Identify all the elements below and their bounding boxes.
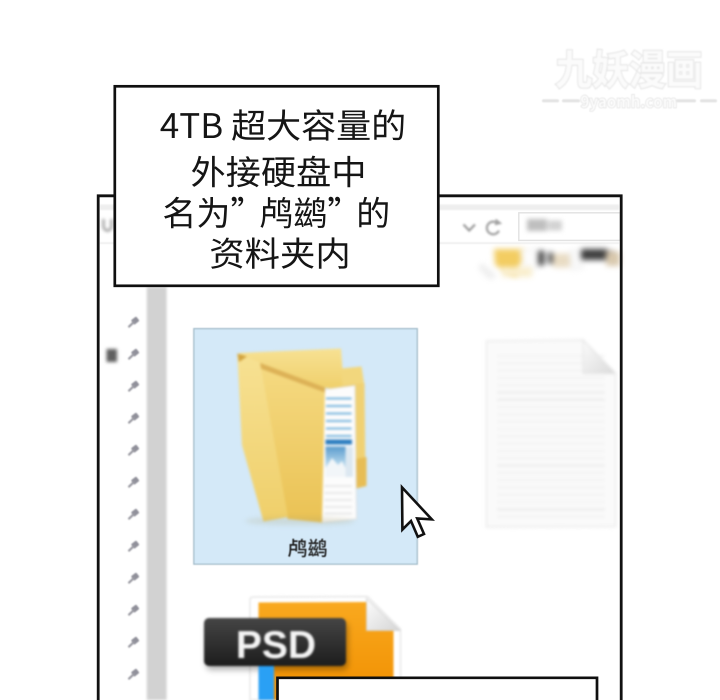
- svg-text:PSD: PSD: [236, 624, 316, 667]
